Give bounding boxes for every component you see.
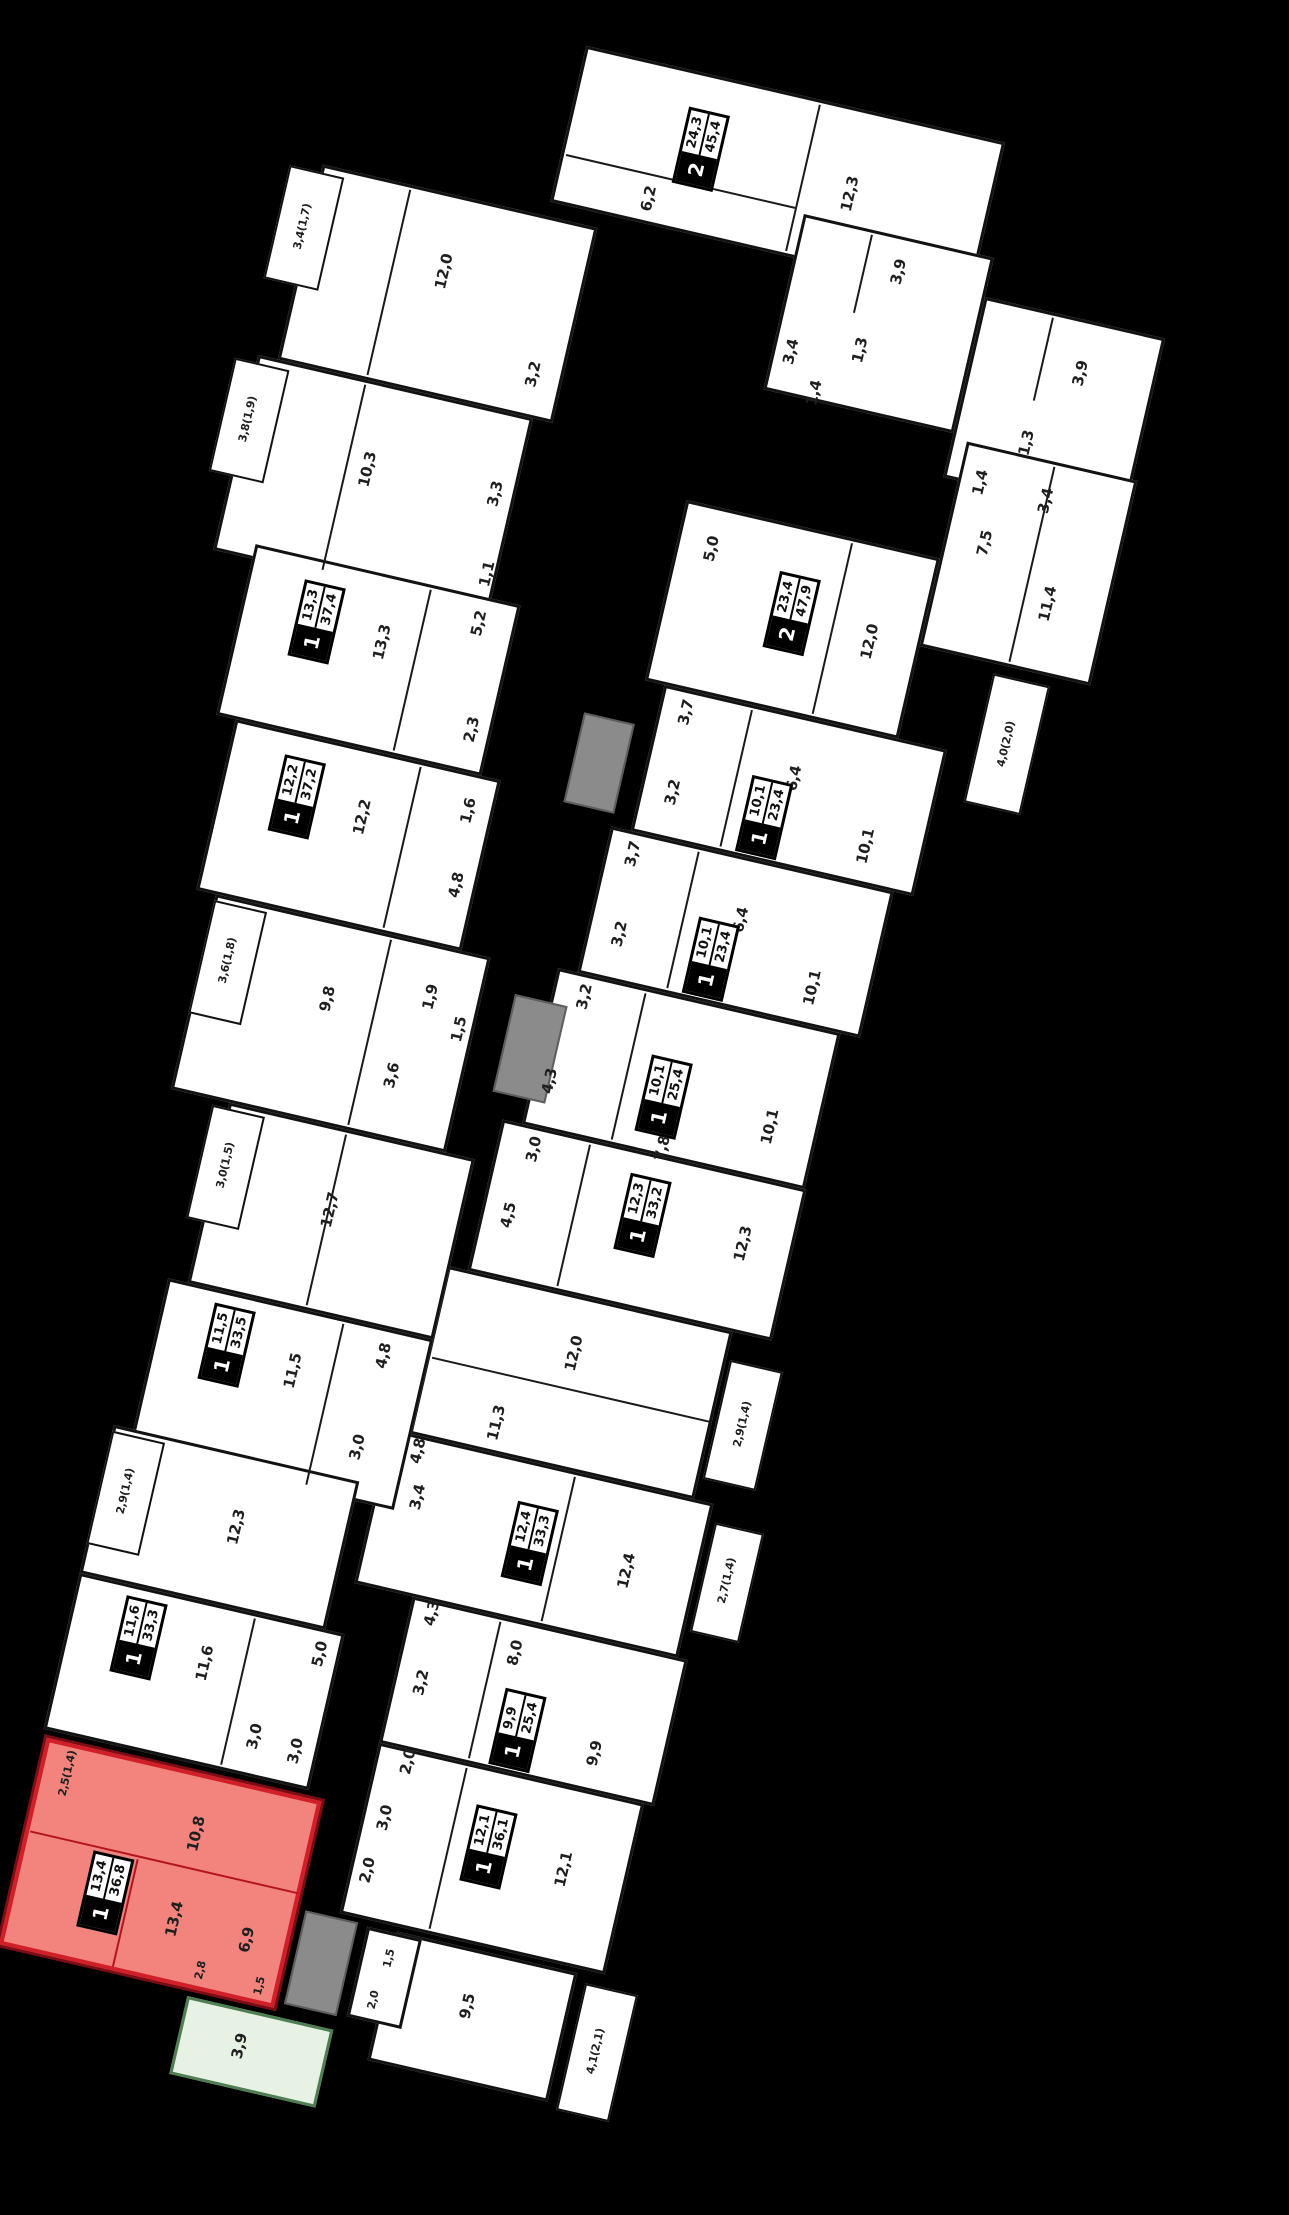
area-figures: 13,337,4 [298, 583, 343, 632]
elevator-shaft [563, 712, 634, 813]
area-figures: 10,123,4 [745, 778, 790, 827]
building-strip: 12,36,2224,345,43,91,31,43,43,91,31,43,4… [0, 12, 1064, 2183]
area-figures: 24,345,4 [682, 110, 727, 159]
area-figures: 12,433,3 [511, 1504, 556, 1553]
area-figures: 12,333,2 [624, 1176, 669, 1225]
elevator-shaft [284, 1910, 358, 2016]
screenshot-root: { "plan": { "colors": { "background": "#… [0, 0, 1289, 2121]
area-figures: 13,436,8 [86, 1854, 131, 1903]
area-figures: 12,237,2 [278, 758, 323, 807]
floor-plan-canvas: 12,36,2224,345,43,91,31,43,43,91,31,43,4… [0, 0, 1289, 2121]
area-figures: 9,925,4 [499, 1691, 544, 1740]
area-figures: 10,125,4 [645, 1058, 690, 1107]
area-figures: 10,123,4 [692, 920, 737, 969]
area-figures: 11,633,3 [120, 1599, 165, 1648]
unit-block-green-bath-zone [169, 1996, 333, 2108]
area-figures: 23,447,9 [773, 574, 818, 623]
area-figures: 11,533,5 [208, 1306, 253, 1355]
area-figures: 12,136,1 [470, 1808, 515, 1857]
